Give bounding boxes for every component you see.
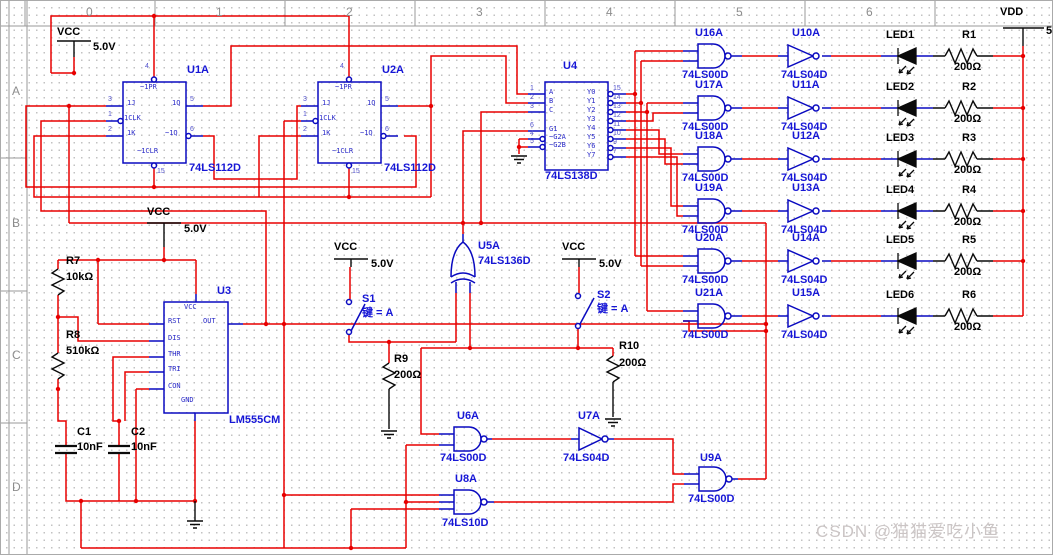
u15a-part: 74LS04D (781, 329, 827, 341)
u20a-ref[interactable]: U20A (695, 232, 723, 244)
r8-ref[interactable]: R8 (66, 329, 80, 341)
r6-ref[interactable]: R6 (962, 289, 976, 301)
vcc3-value: 5.0V (371, 258, 394, 270)
u9a-part: 74LS00D (688, 493, 734, 505)
u1a-pinnum-1: 1 (108, 111, 112, 119)
u1a-pin-clk: 1CLK (124, 115, 141, 123)
r1-value: 200Ω (954, 61, 981, 73)
c1-value: 10nF (77, 441, 103, 453)
u4-pin-y6: Y6 (587, 143, 595, 151)
r6-value: 200Ω (954, 321, 981, 333)
ruler-col-4: 4 (606, 6, 613, 19)
r2-ref[interactable]: R2 (962, 81, 976, 93)
vcc1-label[interactable]: VCC (57, 26, 80, 38)
u1a-pinnum-3: 3 (108, 96, 112, 104)
u4-pin-y2: Y2 (587, 107, 595, 115)
ruler-row-b: B (12, 217, 20, 230)
u1a-pin-pr: ~1PR (140, 84, 157, 92)
r4-ref[interactable]: R4 (962, 184, 976, 196)
ruler-col-1: 1 (216, 6, 223, 19)
u4-pinnum-7: 7 (613, 148, 617, 156)
led6-ref[interactable]: LED6 (886, 289, 914, 301)
u4-pinnum-2: 2 (530, 94, 534, 102)
u2a-pin-pr: ~1PR (335, 84, 352, 92)
u4-pin-y4: Y4 (587, 125, 595, 133)
r7-ref[interactable]: R7 (66, 255, 80, 267)
u21a-part: 74LS00D (682, 329, 728, 341)
u1a-pin-clr: ~1CLR (137, 148, 158, 156)
u4-pin-y1: Y1 (587, 98, 595, 106)
u20a-part: 74LS00D (682, 274, 728, 286)
u4-pinnum-4: 4 (530, 130, 534, 138)
u3-pin-vcc: VCC (184, 304, 197, 312)
u10a-ref[interactable]: U10A (792, 27, 820, 39)
vcc4-value: 5.0V (599, 258, 622, 270)
u4-pinnum-9: 9 (613, 139, 617, 147)
u4-pin-y3: Y3 (587, 116, 595, 124)
u4-pinnum-1: 1 (530, 85, 534, 93)
r10-ref[interactable]: R10 (619, 340, 639, 352)
vdd-net-number: 5 (1046, 25, 1052, 37)
ruler-col-2: 2 (346, 6, 353, 19)
r9-ref[interactable]: R9 (394, 353, 408, 365)
u2a-pin-k: 1K (322, 130, 330, 138)
u8a-ref[interactable]: U8A (455, 473, 477, 485)
vcc3-label[interactable]: VCC (334, 241, 357, 253)
u1a-pin-qn: ~1Q (165, 130, 178, 138)
u8a-part: 74LS10D (442, 517, 488, 529)
csdn-watermark: CSDN @猫猫爱吃小鱼 (816, 523, 1000, 542)
r8-value: 510kΩ (66, 345, 99, 357)
u3-ref[interactable]: U3 (217, 285, 231, 297)
u8a-nand3-gate[interactable] (439, 490, 494, 514)
led2-ref[interactable]: LED2 (886, 81, 914, 93)
vcc2-value: 5.0V (184, 223, 207, 235)
u4-pin-y5: Y5 (587, 134, 595, 142)
u3-pin-con: CON (168, 383, 181, 391)
r9-value: 200Ω (394, 369, 421, 381)
vdd-label[interactable]: VDD (1000, 6, 1023, 18)
vcc2-label[interactable]: VCC (147, 206, 170, 218)
schematic-sheet: 0 1 2 3 4 5 6 A B C D VCC 5.0V VCC 5.0V … (0, 0, 1053, 555)
u2a-pinnum-5: 5 (385, 96, 389, 104)
u11a-ref[interactable]: U11A (792, 79, 820, 91)
u2a-pin-j: 1J (322, 100, 330, 108)
u1a-pin-q: 1Q (172, 100, 180, 108)
u4-pinnum-3: 3 (530, 103, 534, 111)
led1-ref[interactable]: LED1 (886, 29, 914, 41)
led5-ref[interactable]: LED5 (886, 234, 914, 246)
ruler-row-c: C (12, 349, 21, 362)
r2-value: 200Ω (954, 113, 981, 125)
u3-pin-tri: TRI (168, 366, 181, 374)
u3-pin-thr: THR (168, 351, 181, 359)
u5a-ref[interactable]: U5A (478, 240, 500, 252)
u16a-ref[interactable]: U16A (695, 27, 723, 39)
u12a-ref[interactable]: U12A (792, 130, 820, 142)
u19a-ref[interactable]: U19A (695, 182, 723, 194)
u4-pinnum-6: 6 (530, 122, 534, 130)
u4-ref[interactable]: U4 (563, 60, 577, 72)
u7a-ref[interactable]: U7A (578, 410, 600, 422)
u4-pin-y0: Y0 (587, 89, 595, 97)
u1a-pinnum-2: 2 (108, 126, 112, 134)
u4-pinnum-5: 5 (530, 138, 534, 146)
r7-value: 10kΩ (66, 271, 93, 283)
r10-value: 200Ω (619, 357, 646, 369)
c2-ref[interactable]: C2 (131, 426, 145, 438)
u9a-nand-gate[interactable] (684, 467, 738, 491)
u4-pin-a: A (549, 89, 553, 97)
s2-key-label: 键 = A (597, 303, 628, 315)
u2a-pin-clk: 1CLK (319, 115, 336, 123)
u2a-pinnum-2: 2 (303, 126, 307, 134)
u4-pin-g2b: ~G2B (549, 142, 566, 150)
u3-pin-out: OUT (203, 318, 216, 326)
vcc4-label[interactable]: VCC (562, 241, 585, 253)
u4-pinnum-13: 13 (613, 103, 621, 111)
r3-value: 200Ω (954, 164, 981, 176)
u2a-pin-clr: ~1CLR (332, 148, 353, 156)
u6a-part: 74LS00D (440, 452, 486, 464)
u17a-ref[interactable]: U17A (695, 79, 723, 91)
passive-symbols[interactable] (52, 28, 1044, 528)
r1-ref[interactable]: R1 (962, 29, 976, 41)
r5-ref[interactable]: R5 (962, 234, 976, 246)
u3-pin-gnd: GND (181, 397, 194, 405)
u5a-part: 74LS136D (478, 255, 531, 267)
u2a-pinnum-6: 6 (385, 126, 389, 134)
u1a-pinnum-6: 6 (190, 126, 194, 134)
u4-pinnum-14: 14 (613, 94, 621, 102)
u3-pin-rst: RST (168, 318, 181, 326)
u2a-pinnum-4: 4 (340, 63, 344, 71)
s1-ref[interactable]: S1 (362, 293, 375, 305)
u5a-xor-gate[interactable] (451, 234, 475, 293)
u4-decoder[interactable] (528, 82, 626, 170)
ruler-col-6: 6 (866, 6, 873, 19)
u4-pinnum-12: 12 (613, 112, 621, 120)
u2a-pinnum-3: 3 (303, 96, 307, 104)
u4-pin-b: B (549, 98, 553, 106)
u2a-pin-qn: ~1Q (360, 130, 373, 138)
u1a-pinnum-15: 15 (157, 168, 165, 176)
ruler-col-0: 0 (86, 6, 93, 19)
u2a-pin-q: 1Q (367, 100, 375, 108)
u7a-inverter[interactable] (579, 428, 608, 450)
u4-pin-y7: Y7 (587, 152, 595, 160)
r3-ref[interactable]: R3 (962, 132, 976, 144)
u3-part: LM555CM (229, 414, 280, 426)
u2a-pinnum-1: 1 (303, 111, 307, 119)
led4-ref[interactable]: LED4 (886, 184, 914, 196)
r5-value: 200Ω (954, 266, 981, 278)
wire-net[interactable] (26, 16, 1023, 548)
u1a-pin-k: 1K (127, 130, 135, 138)
u1a-pin-j: 1J (127, 100, 135, 108)
u4-pinnum-11: 11 (613, 121, 620, 129)
ruler-col-5: 5 (736, 6, 743, 19)
u9a-ref[interactable]: U9A (700, 452, 722, 464)
ruler-col-3: 3 (476, 6, 483, 19)
u4-part: 74LS138D (545, 170, 598, 182)
c2-value: 10nF (131, 441, 157, 453)
u3-pin-dis: DIS (168, 335, 181, 343)
u15a-ref[interactable]: U15A (792, 287, 820, 299)
u3-timer[interactable] (149, 294, 243, 421)
u2a-part: 74LS112D (384, 162, 436, 174)
u6a-ref[interactable]: U6A (457, 410, 479, 422)
s1-key-label: 键 = A (362, 307, 393, 319)
u7a-part: 74LS04D (563, 452, 609, 464)
u4-pinnum-15: 15 (613, 85, 621, 93)
s2-ref[interactable]: S2 (597, 289, 610, 301)
ruler-row-d: D (12, 481, 21, 494)
u1a-pinnum-5: 5 (190, 96, 194, 104)
u13a-ref[interactable]: U13A (792, 182, 820, 194)
vcc1-value: 5.0V (93, 41, 116, 53)
u4-pinnum-10: 10 (613, 130, 621, 138)
u14a-ref[interactable]: U14A (792, 232, 820, 244)
c1-ref[interactable]: C1 (77, 426, 91, 438)
r4-value: 200Ω (954, 216, 981, 228)
led3-ref[interactable]: LED3 (886, 132, 914, 144)
u2a-pinnum-15: 15 (352, 168, 360, 176)
u4-pin-c: C (549, 107, 553, 115)
u1a-pinnum-4: 4 (145, 63, 149, 71)
u1a-part: 74LS112D (189, 162, 241, 174)
u1a-ref[interactable]: U1A (187, 64, 209, 76)
ruler-row-a: A (12, 85, 20, 98)
u18a-ref[interactable]: U18A (695, 130, 723, 142)
u2a-ref[interactable]: U2A (382, 64, 404, 76)
u21a-ref[interactable]: U21A (695, 287, 723, 299)
u14a-part: 74LS04D (781, 274, 827, 286)
